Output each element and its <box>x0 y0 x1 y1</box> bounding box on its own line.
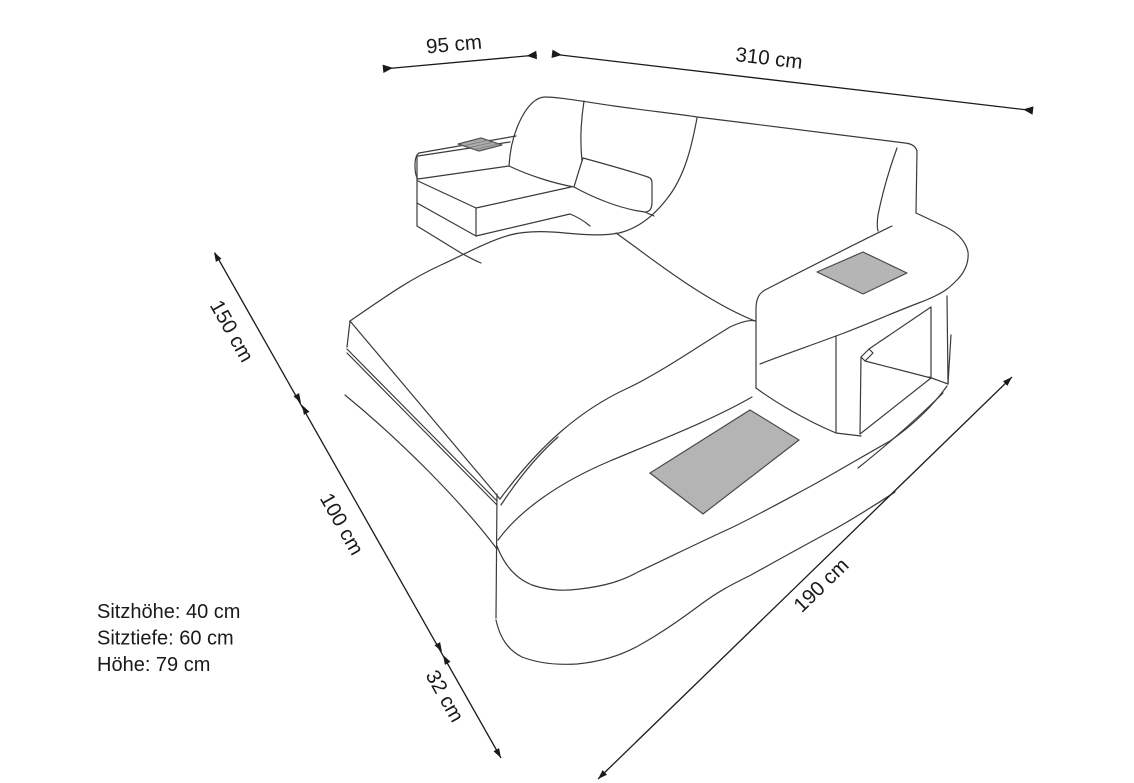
svg-text:Sitztiefe: 60 cm: Sitztiefe: 60 cm <box>97 628 234 650</box>
svg-text:Höhe: 79 cm: Höhe: 79 cm <box>97 654 210 676</box>
svg-text:Sitzhöhe: 40 cm: Sitzhöhe: 40 cm <box>97 601 240 623</box>
